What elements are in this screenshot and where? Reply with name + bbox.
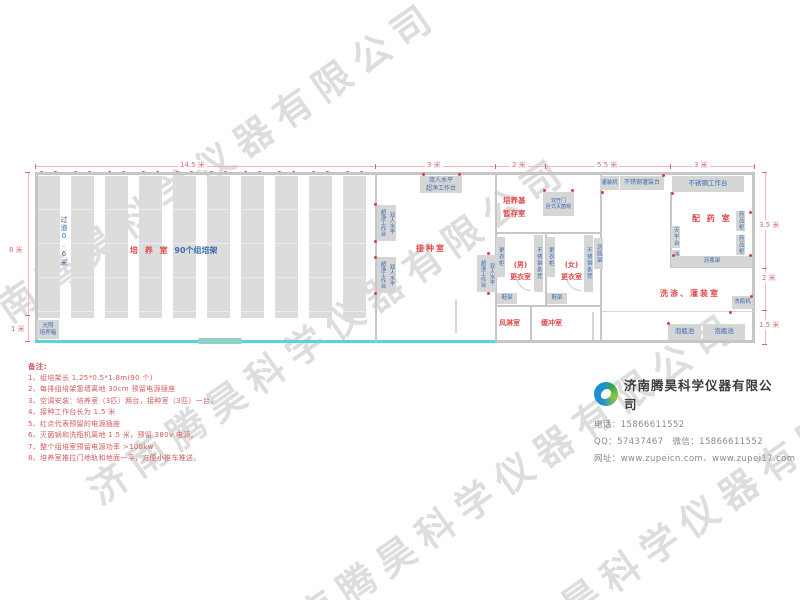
sterilizer-line2: 卧式灭菌锅 [546, 204, 571, 210]
culture-room-name: 培 养 室 [130, 246, 170, 255]
dim-tick [495, 164, 496, 169]
locker-male: 更衣柜 [496, 237, 505, 277]
bench-line2: 超净工作台 [378, 261, 387, 289]
power-socket-dot [543, 189, 546, 192]
note-item: 3、空调安装：培养室（3匹）两台，接种室（3匹）一台。 [28, 396, 217, 408]
culture-rack-count: 90个组培架 [174, 246, 217, 255]
company-block: 济南腾昊科学仪器有限公司 电话：15866611552 QQ：57437467 … [594, 375, 784, 464]
door-leaf-buffer [592, 312, 594, 340]
filling-table: 不锈钢灌装台 [620, 176, 664, 190]
medium-storage-label: 培养基 暂存室 [503, 194, 526, 220]
company-logo-icon [594, 382, 618, 406]
wall-bottom-right [495, 340, 755, 343]
balance-table: 天平台 [671, 226, 680, 248]
company-header: 济南腾昊科学仪器有限公司 [594, 375, 784, 413]
dim-tick [762, 172, 767, 173]
sterilizer: 双开门 卧式灭菌锅 [543, 192, 574, 216]
culture-rack-bar [343, 176, 366, 318]
power-socket-dot [667, 322, 670, 325]
washing-room-label: 洗涤、灌装室 [660, 288, 720, 299]
culture-rack-bar [275, 176, 298, 318]
power-socket-dot [672, 254, 675, 257]
steel-bench-male: 不锈钢条凳 [534, 235, 543, 292]
note-item: 2、每排组培架靠墙离地 30cm 预留电源插座 [28, 384, 217, 396]
inoculation-room-label: 接种室 [416, 243, 446, 254]
culture-rack-bar [71, 176, 94, 318]
power-socket-dot [571, 189, 574, 192]
soaking-pool-1: 泡瓶池 [668, 324, 701, 340]
dim-tick [35, 164, 36, 169]
bottle-washer: 洗瓶机 [732, 296, 753, 309]
dim-label-2m: 2 米 [760, 273, 778, 283]
bench-line1: 双人水平 [387, 209, 396, 237]
power-socket-dot [374, 203, 377, 206]
wall-right [752, 172, 755, 343]
dim-tick [762, 344, 767, 345]
power-socket-dot [458, 173, 461, 176]
bench-line2: 超净工作台 [378, 209, 387, 237]
dim-tick [754, 164, 755, 169]
locker-female: 更衣柜 [546, 237, 555, 277]
culture-rack-bar [241, 176, 264, 318]
drain-rack-wall: 沥瓶架 [594, 238, 603, 269]
soaking-pool-2: 泡瓶池 [703, 324, 745, 340]
wall-storage-dressing [495, 232, 602, 234]
wall-left [35, 172, 38, 343]
note-item: 4、接种工作台长为 1.5 米 [28, 407, 217, 419]
steel-worktable: 不锈钢工作台 [672, 176, 744, 192]
light-incubator: 光照 培养箱 [37, 320, 59, 339]
dim-tick [25, 341, 30, 342]
culture-rack-bar [309, 176, 332, 318]
dim-tick [545, 164, 546, 169]
company-phone: 电话：15866611552 [594, 418, 784, 430]
shoe-rack-male: 鞋架 [497, 293, 517, 304]
dimension-line-top [35, 166, 755, 167]
clean-bench-top: 双人水平 超净工作台 [420, 176, 462, 193]
wall-washing-pools [602, 311, 755, 312]
incubator-line1: 光照 [42, 323, 53, 330]
floor-plan-page: 济南腾昊科学仪器有限公司 济南腾昊科学仪器有限公司 济南腾昊科学仪器有限公司 济… [0, 0, 800, 600]
company-name: 济南腾昊科学仪器有限公司 [624, 375, 784, 413]
shoe-rack-female: 鞋架 [547, 293, 567, 304]
power-socket-dot [374, 240, 377, 243]
medicine-cabinet-1: 药品柜 [736, 211, 745, 231]
wall-top [35, 172, 755, 175]
power-socket-dot [487, 252, 490, 255]
wall-airshower-buffer [530, 305, 532, 341]
note-item: 5、红点代表预留的电源插座 [28, 419, 217, 431]
power-socket-dot [750, 295, 753, 298]
power-socket-dot [487, 292, 490, 295]
buffer-room-label: 缓冲室 [541, 318, 562, 328]
dim-label-1-5m: 1.5 米 [757, 320, 781, 330]
aisle-label: 过道0.6米 [59, 216, 69, 267]
filling-machine: 灌装机 [600, 176, 619, 190]
dimension-line-left [28, 172, 29, 342]
steel-bench-female: 不锈钢条凳 [584, 235, 593, 292]
dim-tick [25, 172, 30, 173]
dim-tick [25, 315, 30, 316]
company-website: 网址：www.zupeicn.com、www.zupei17.com [594, 452, 784, 464]
culture-rack-bar [105, 176, 128, 318]
power-socket-dot [601, 191, 604, 194]
bench-line2: 超净工作台 [426, 185, 456, 192]
clean-bench-right: 双人水平 超净工作台 [477, 255, 496, 292]
window-strip-bottom [35, 340, 497, 343]
power-socket-dot [422, 173, 425, 176]
dim-label-14-5m: 14.5 米 [178, 160, 207, 170]
dispensing-room-label: 配 药 室 [692, 213, 732, 224]
female-dressing-label: (女) 更衣室 [561, 259, 582, 283]
medicine-cabinet-2: 药品柜 [736, 235, 745, 255]
clean-bench-left-1: 双人水平 超净工作台 [377, 205, 396, 241]
female-tag: (女) [561, 259, 582, 271]
clean-bench-left-2: 双人水平 超净工作台 [377, 257, 396, 293]
air-shower-label: 风淋室 [499, 318, 520, 328]
power-socket-dot [374, 292, 377, 295]
dim-label-3m: 3 米 [425, 160, 443, 170]
culture-rack-bar [37, 176, 60, 318]
notes-list: 1、组培架长 1.25*0.5*1.8m(90 个) 2、每排组培架靠墙离地 3… [28, 373, 217, 465]
notes-block: 备注: 1、组培架长 1.25*0.5*1.8m(90 个) 2、每排组培架靠墙… [28, 361, 217, 465]
female-name: 更衣室 [561, 271, 582, 283]
power-socket-dot [671, 192, 674, 195]
wall-dressing-buffer [495, 305, 602, 307]
culture-room-label: 培 养 室 90个组培架 [130, 245, 218, 256]
medium-storage-line1: 培养基 [503, 194, 526, 207]
door-leaf-inoculation [455, 300, 457, 333]
dim-label-5-5m: 5.5 米 [595, 160, 619, 170]
power-socket-dot [729, 311, 732, 314]
note-item: 6、灭菌锅和洗瓶机离地 1.5 米，预留 380v 电源。 [28, 430, 217, 442]
bench-line1: 双人水平 [487, 260, 496, 288]
bench-line2: 超净工作台 [478, 260, 487, 288]
male-name: 更衣室 [510, 271, 531, 283]
dim-tick [375, 164, 376, 169]
note-item: 8、培养室推拉门地轨和地面一平，方便小推车推送。 [28, 453, 217, 465]
notes-title: 备注: [28, 361, 217, 373]
dim-label-3m: 3 米 [692, 160, 710, 170]
bench-line1: 双人水平 [387, 261, 396, 289]
power-socket-dot [374, 256, 377, 259]
power-socket-dot [749, 211, 752, 214]
dim-label-8m: 8 米 [7, 245, 25, 255]
note-item: 7、整个组培室预留电源功率 >100kw [28, 442, 217, 454]
medium-storage-line2: 暂存室 [503, 207, 526, 220]
dim-tick [762, 268, 767, 269]
incubator-line2: 培养箱 [40, 330, 57, 337]
dim-label-1m: 1 米 [9, 324, 27, 334]
male-tag: (男) [510, 259, 531, 271]
dim-tick [670, 164, 671, 169]
note-item: 1、组培架长 1.25*0.5*1.8m(90 个) [28, 373, 217, 385]
power-socket-dot [749, 254, 752, 257]
power-socket-dot [662, 174, 665, 177]
dim-label-3-5m: 3.5 米 [757, 220, 781, 230]
dim-label-2m: 2 米 [510, 160, 528, 170]
bench-line1: 双人水平 [429, 177, 453, 184]
dim-tick [762, 310, 767, 311]
company-qq-wechat: QQ：57437467 微信：15866611552 [594, 435, 784, 447]
male-dressing-label: (男) 更衣室 [510, 259, 531, 283]
sliding-door [198, 338, 242, 344]
drain-rack-bar: 沥瓶架 [672, 256, 752, 267]
